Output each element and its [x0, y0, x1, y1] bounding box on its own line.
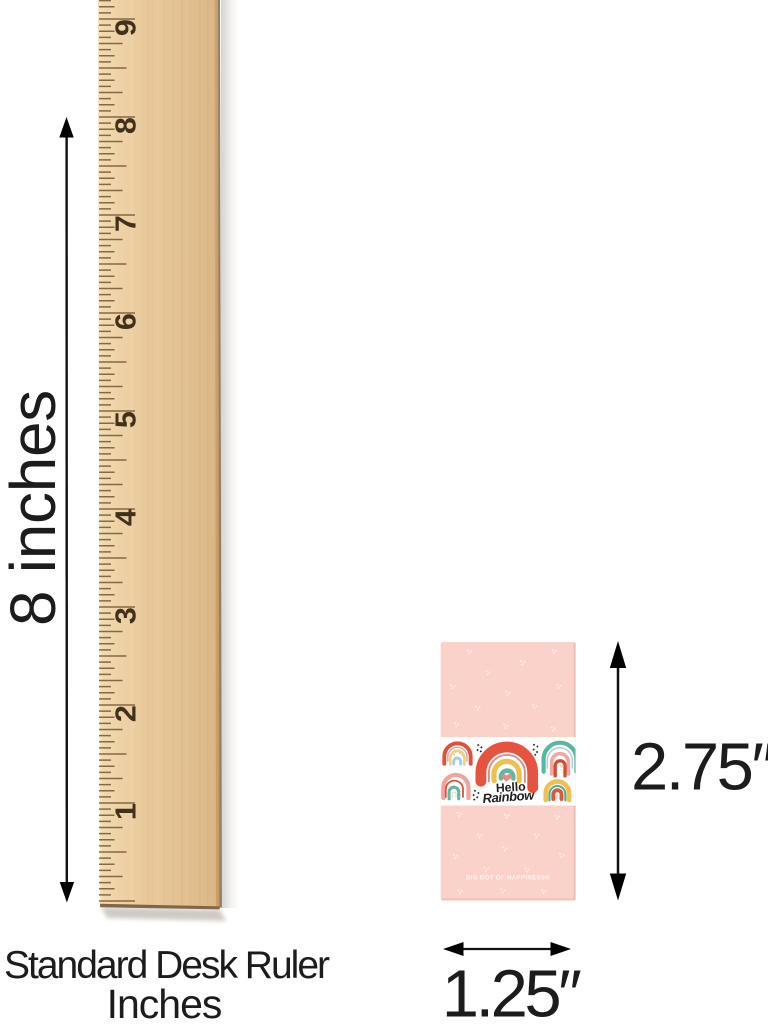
svg-text:BIG DOT OF HAPPINESS®: BIG DOT OF HAPPINESS®: [466, 875, 550, 882]
svg-text:8: 8: [110, 117, 142, 134]
svg-text:8 inches: 8 inches: [0, 390, 69, 626]
svg-text:1.25″: 1.25″: [442, 957, 581, 1024]
svg-text:2.75″: 2.75″: [631, 730, 768, 805]
svg-text:3: 3: [110, 607, 142, 624]
svg-text:4: 4: [110, 509, 142, 526]
svg-text:Inches: Inches: [107, 981, 222, 1024]
svg-text:7: 7: [110, 215, 142, 232]
svg-text:1: 1: [110, 803, 142, 820]
svg-text:2: 2: [110, 705, 142, 722]
svg-text:6: 6: [110, 313, 142, 330]
svg-text:9: 9: [110, 19, 142, 36]
svg-text:5: 5: [110, 411, 142, 428]
